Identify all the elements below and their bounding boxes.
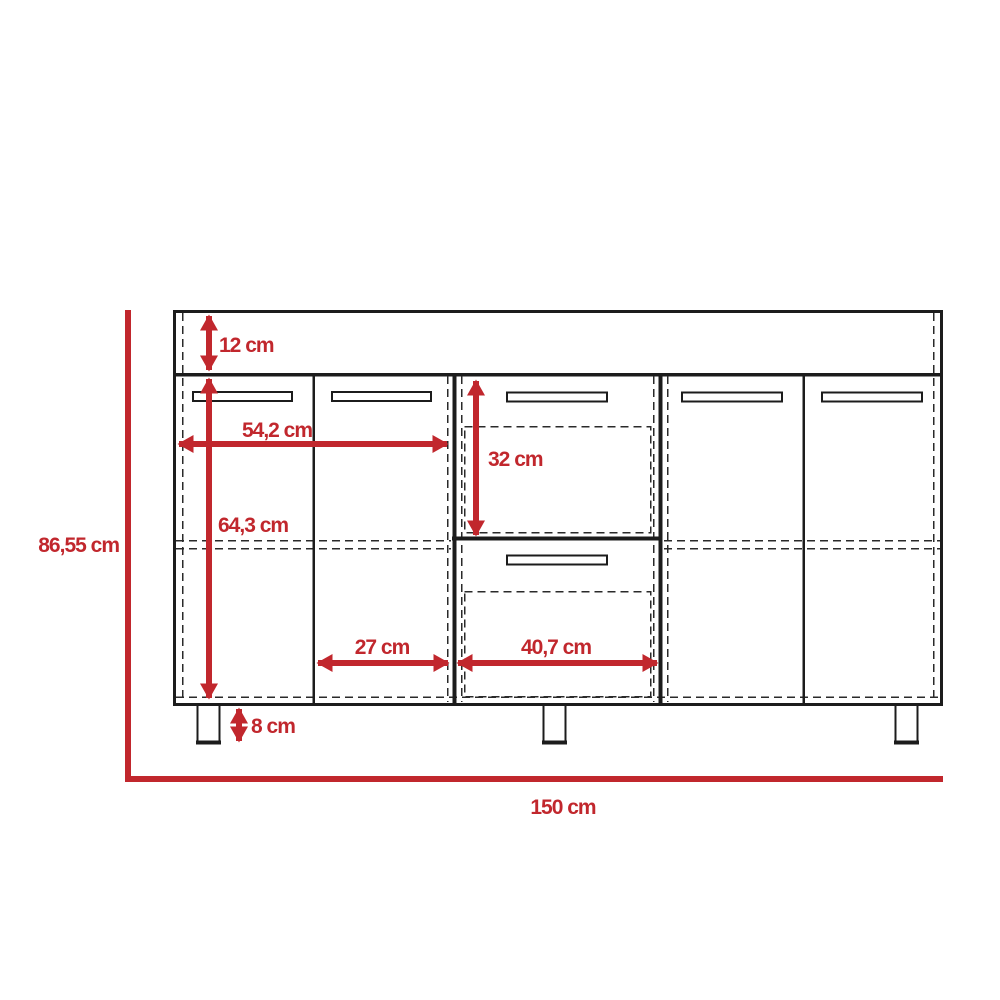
handle-right-door-1 (682, 393, 782, 402)
dim-label-door-width: 27 cm (355, 636, 410, 659)
handle-top-drawer (507, 393, 607, 402)
leg-left (196, 705, 221, 743)
top-drawer-box-dashed (465, 427, 651, 533)
leg-right (894, 705, 919, 743)
handle-left-door-2 (332, 392, 431, 401)
diagram-canvas: 12 cm 54,2 cm 32 cm 64,3 cm 27 cm 40,7 c… (0, 0, 1000, 1000)
handle-bottom-drawer (507, 556, 607, 565)
dimension-annotations (128, 310, 943, 779)
leg-center (542, 705, 567, 743)
furniture-dimension-diagram: 12 cm 54,2 cm 32 cm 64,3 cm 27 cm 40,7 c… (0, 0, 1000, 1000)
overall-dimension-bracket (128, 310, 943, 779)
handle-right-door-2 (822, 393, 922, 402)
dim-label-top-panel-height: 12 cm (219, 334, 274, 357)
dim-label-total-width: 150 cm (530, 796, 596, 819)
cabinet-drawing (173, 312, 942, 743)
dim-label-leg-height: 8 cm (251, 715, 295, 738)
dim-label-drawer-width: 40,7 cm (521, 636, 591, 659)
dim-label-door-height: 64,3 cm (218, 514, 288, 537)
dim-label-drawer-opening-height: 32 cm (488, 448, 543, 471)
dim-label-total-height: 86,55 cm (38, 534, 119, 557)
dim-label-left-section-width: 54,2 cm (242, 419, 312, 442)
dimension-labels: 12 cm 54,2 cm 32 cm 64,3 cm 27 cm 40,7 c… (38, 334, 596, 819)
